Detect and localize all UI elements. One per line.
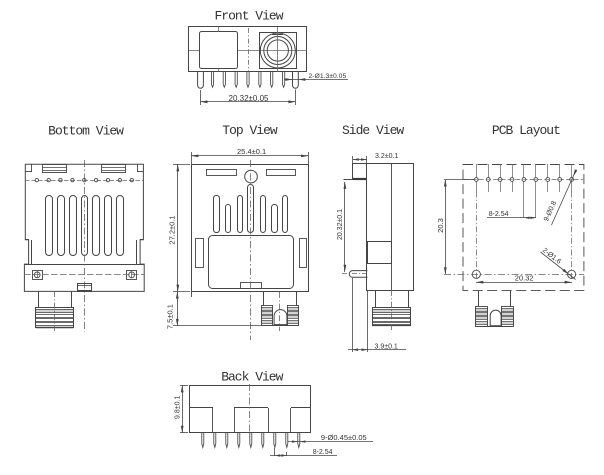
- svg-text:20.32±0.05: 20.32±0.05: [229, 94, 270, 103]
- svg-text:20.3: 20.3: [436, 218, 445, 233]
- svg-text:Bottom View: Bottom View: [48, 124, 124, 139]
- svg-text:27.2±0.1: 27.2±0.1: [168, 215, 177, 244]
- svg-text:PCB Layout: PCB Layout: [492, 123, 560, 138]
- svg-text:3.9±0.1: 3.9±0.1: [375, 343, 398, 350]
- svg-text:25.4±0.1: 25.4±0.1: [237, 147, 266, 156]
- svg-text:Front View: Front View: [214, 9, 283, 24]
- svg-text:Top View: Top View: [222, 123, 278, 138]
- svg-text:7.5±0.1: 7.5±0.1: [166, 304, 175, 329]
- svg-text:3.2±0.1: 3.2±0.1: [375, 153, 398, 160]
- svg-text:Back View: Back View: [221, 370, 283, 385]
- svg-text:2-Ø1.3±0.05: 2-Ø1.3±0.05: [309, 73, 347, 80]
- svg-text:9-Ø0.45±0.05: 9-Ø0.45±0.05: [321, 433, 367, 442]
- svg-text:9.8±0.1: 9.8±0.1: [174, 396, 181, 419]
- svg-text:20.32: 20.32: [515, 273, 534, 282]
- svg-text:20.32±0.1: 20.32±0.1: [337, 209, 344, 240]
- svg-text:Side View: Side View: [342, 123, 404, 138]
- svg-text:8-2.54: 8-2.54: [313, 449, 333, 456]
- svg-text:8-2.54: 8-2.54: [489, 211, 509, 218]
